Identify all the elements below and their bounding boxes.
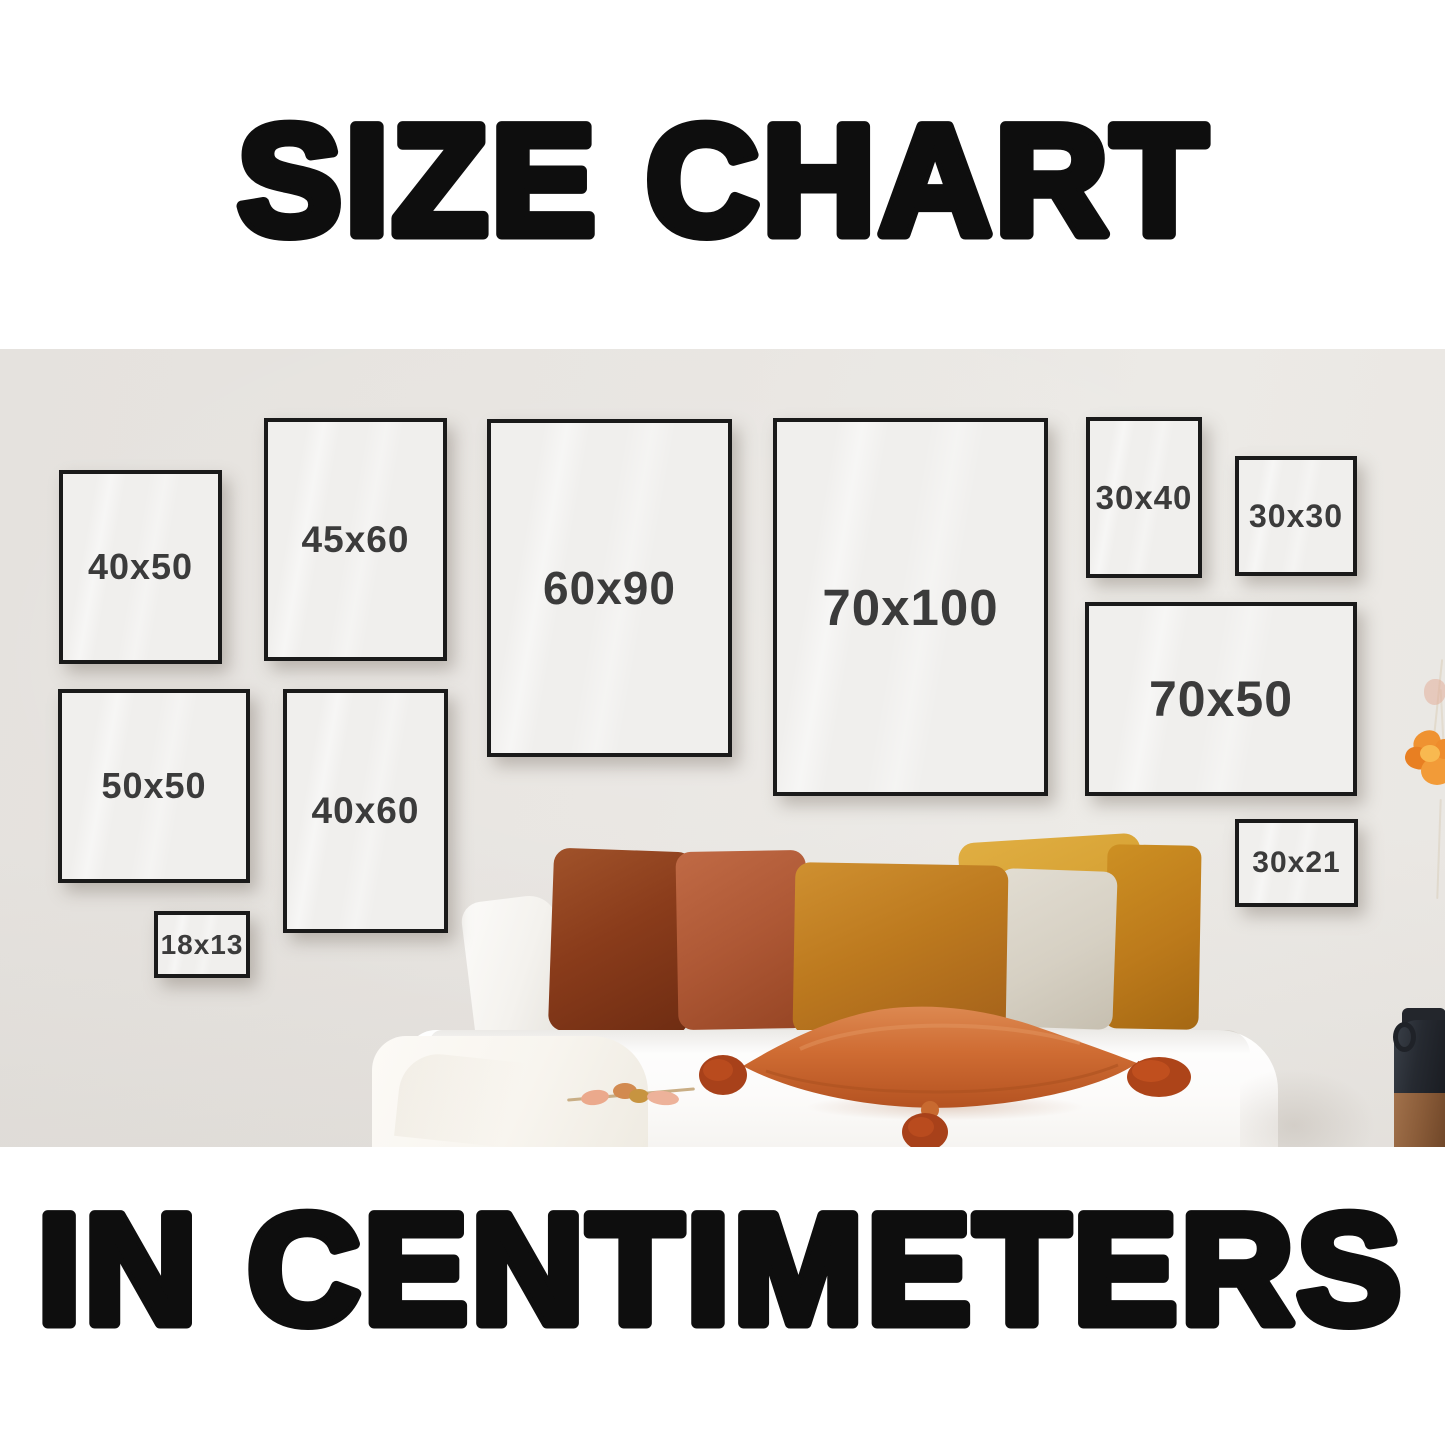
- svg-text:IN CENTIMETERS: IN CENTIMETERS: [37, 1183, 1404, 1357]
- svg-text:SIZE CHART: SIZE CHART: [238, 94, 1211, 268]
